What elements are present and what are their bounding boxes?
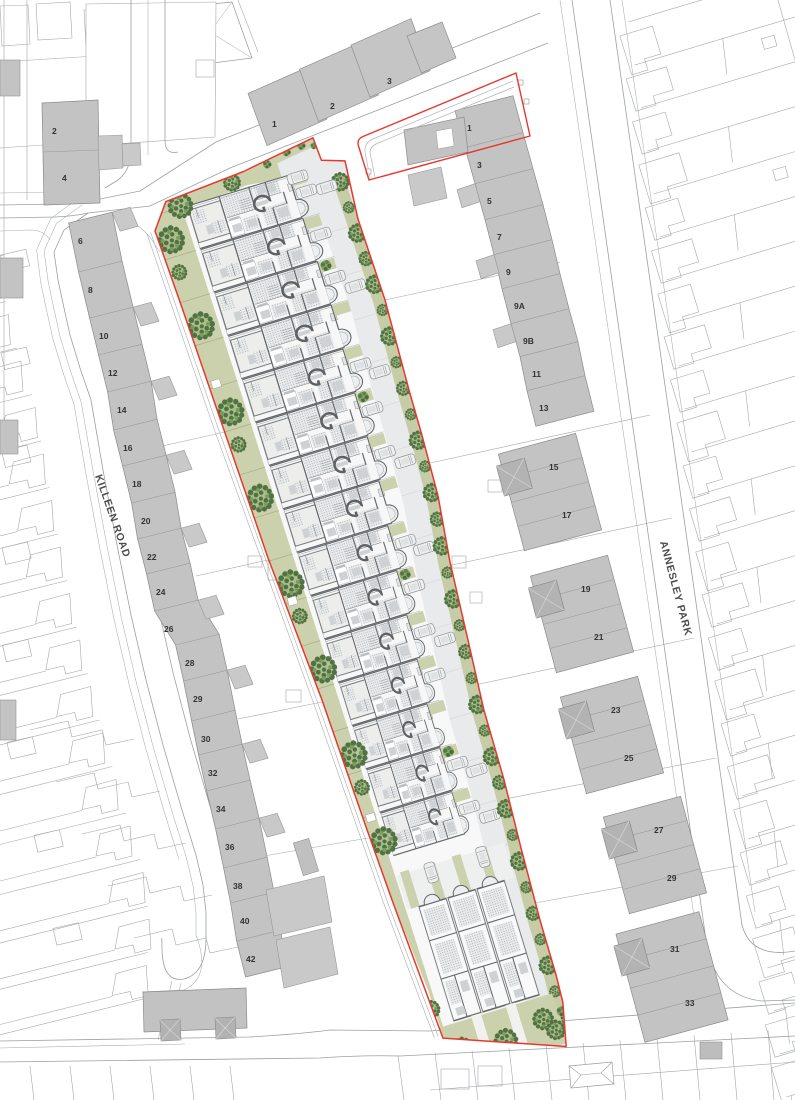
svg-text:9A: 9A xyxy=(514,301,525,311)
svg-text:42: 42 xyxy=(246,954,256,964)
svg-text:1: 1 xyxy=(272,119,277,129)
svg-text:11: 11 xyxy=(532,369,541,379)
svg-text:1: 1 xyxy=(467,123,472,133)
svg-text:21: 21 xyxy=(594,632,604,642)
svg-text:8: 8 xyxy=(88,285,93,295)
svg-text:ANNESLEY PARK: ANNESLEY PARK xyxy=(657,540,694,638)
svg-text:29: 29 xyxy=(193,694,203,704)
svg-text:28: 28 xyxy=(185,658,195,668)
svg-text:24: 24 xyxy=(156,587,166,597)
svg-text:7: 7 xyxy=(497,232,502,242)
svg-text:27: 27 xyxy=(654,825,664,835)
svg-text:30: 30 xyxy=(201,734,211,744)
svg-text:9B: 9B xyxy=(523,336,534,346)
svg-text:13: 13 xyxy=(539,403,549,413)
svg-text:17: 17 xyxy=(562,510,572,520)
svg-text:KILLEEN ROAD: KILLEEN ROAD xyxy=(92,473,132,559)
svg-text:3: 3 xyxy=(477,160,482,170)
svg-text:40: 40 xyxy=(240,916,250,926)
svg-text:36: 36 xyxy=(225,842,235,852)
svg-text:2: 2 xyxy=(52,126,57,136)
svg-text:25: 25 xyxy=(624,753,634,763)
svg-text:20: 20 xyxy=(141,516,151,526)
svg-text:12: 12 xyxy=(108,368,118,378)
svg-text:34: 34 xyxy=(216,804,226,814)
svg-text:23: 23 xyxy=(611,705,621,715)
svg-text:29: 29 xyxy=(667,873,677,883)
svg-text:18: 18 xyxy=(132,479,142,489)
svg-text:38: 38 xyxy=(233,881,243,891)
svg-text:22: 22 xyxy=(147,552,157,562)
svg-text:16: 16 xyxy=(123,443,133,453)
svg-text:31: 31 xyxy=(670,944,680,954)
svg-text:6: 6 xyxy=(78,236,83,246)
svg-text:10: 10 xyxy=(99,331,109,341)
svg-text:19: 19 xyxy=(581,584,591,594)
svg-text:15: 15 xyxy=(549,462,559,472)
svg-text:26: 26 xyxy=(164,624,174,634)
svg-text:3: 3 xyxy=(387,76,392,86)
svg-text:2: 2 xyxy=(330,101,335,111)
svg-text:9: 9 xyxy=(506,267,511,277)
svg-text:4: 4 xyxy=(62,173,67,183)
svg-text:32: 32 xyxy=(208,768,218,778)
svg-text:5: 5 xyxy=(487,196,492,206)
svg-text:33: 33 xyxy=(685,998,695,1008)
svg-text:14: 14 xyxy=(117,405,127,415)
